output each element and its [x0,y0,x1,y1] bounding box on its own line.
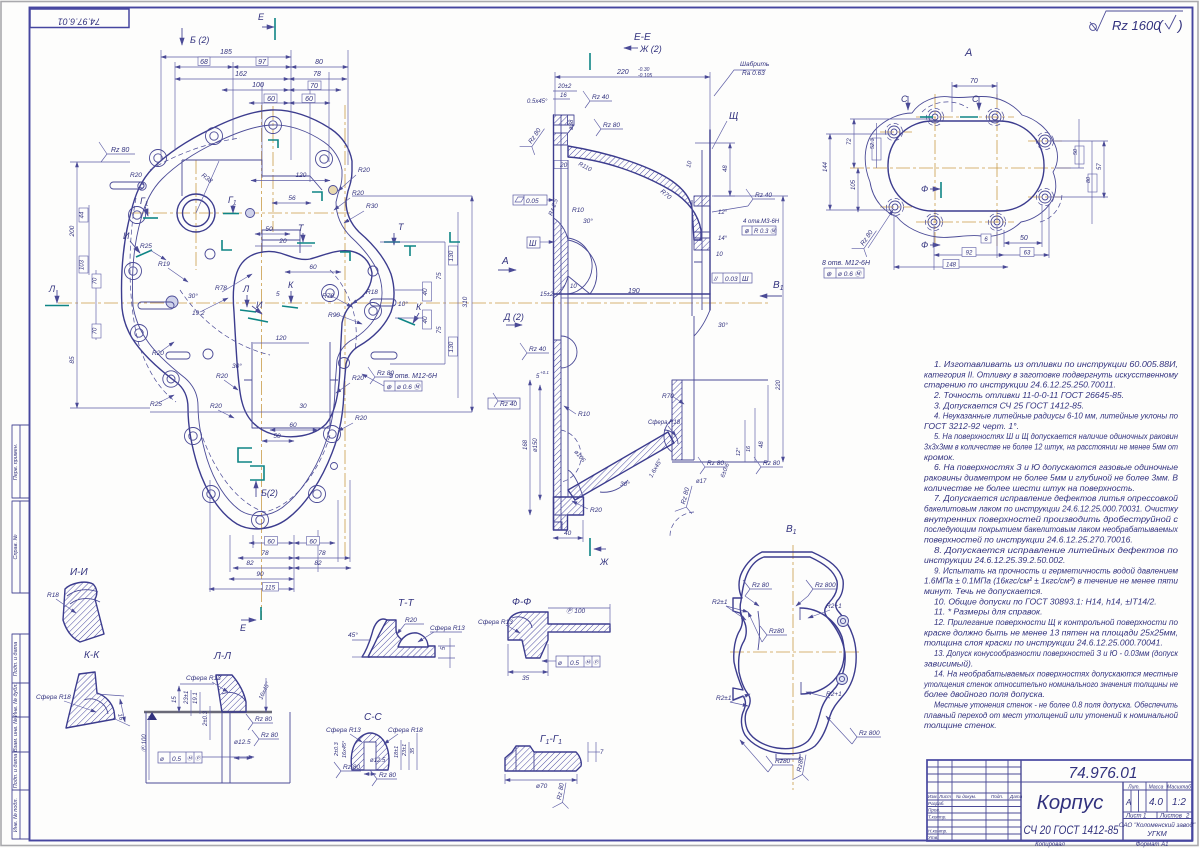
svg-text:Rz 80: Rz 80 [255,716,272,723]
svg-text:10. Общие допуски по ГОСТ 3089: 10. Общие допуски по ГОСТ 30893.1: Н14, … [934,596,1157,606]
svg-text:Дата: Дата [1009,794,1023,799]
svg-text:R20: R20 [352,375,364,382]
svg-text:190: 190 [628,288,640,295]
svg-text:Сфера R13: Сфера R13 [186,675,221,682]
svg-text:Шабрить: Шабрить [740,60,770,68]
svg-text:85: 85 [69,356,76,364]
svg-text:Ш: Ш [529,239,537,248]
svg-text:R19: R19 [158,261,170,268]
svg-text:2±0.3: 2±0.3 [203,710,209,727]
svg-text:Формат А1: Формат А1 [1136,842,1169,848]
svg-text:97: 97 [258,59,267,66]
svg-text:23±1: 23±1 [184,691,190,705]
svg-text:Ж: Ж [599,557,609,567]
svg-text:+0.1: +0.1 [540,370,549,375]
svg-text:103: 103 [80,259,86,270]
svg-text:30°: 30° [718,321,728,329]
svg-text:15±2: 15±2 [540,292,554,298]
svg-text:R18: R18 [47,592,59,599]
svg-text:45°: 45° [348,631,358,639]
svg-text:А: А [1125,798,1131,807]
svg-text:плавный переход от мест утолще: плавный переход от мест утолщений или ут… [924,710,1178,720]
svg-text:Ra 0.63: Ra 0.63 [742,70,765,77]
svg-text:60: 60 [309,539,317,546]
svg-text:100: 100 [252,82,264,89]
svg-text:ø 0.6 Ⓜ: ø 0.6 Ⓜ [838,270,863,278]
svg-text:Rz 80: Rz 80 [707,460,724,467]
svg-text:ГОСТ 3212-92 черт. 1°.: ГОСТ 3212-92 черт. 1°. [924,421,1019,431]
svg-text:63: 63 [1024,251,1031,257]
svg-text:8. Допускается исправление: 8. Допускается исправление литейных дефе… [934,545,1178,555]
svg-text:40: 40 [564,530,572,537]
svg-text:78: 78 [313,71,321,78]
svg-text:Сфера R13: Сфера R13 [430,625,465,632]
svg-text:130: 130 [448,341,455,352]
svg-text:120: 120 [296,172,307,179]
svg-text:20±2: 20±2 [557,84,572,90]
svg-text:16: 16 [560,93,567,99]
svg-text:60: 60 [267,96,275,103]
svg-text:185: 185 [220,49,232,56]
svg-text:И: И [256,300,263,310]
svg-text:Л: Л [48,284,56,294]
svg-text:Е-Е: Е-Е [634,32,651,43]
svg-text:16х45°: 16х45° [342,740,348,758]
svg-text:12°: 12° [736,447,742,456]
svg-text:минут. Течь не допускается.: минут. Течь не допускается. [924,586,1043,596]
svg-text:220: 220 [776,379,782,391]
svg-text:5: 5 [276,291,280,298]
svg-text:К-К: К-К [84,650,100,661]
svg-text:Б (2): Б (2) [190,35,209,45]
svg-text:утолщения стенок относительно: утолщения стенок относительно номинально… [923,679,1178,689]
svg-text:И: И [123,231,130,241]
svg-text:⊕: ⊕ [386,384,392,391]
svg-text:R 0.3 Ⓜ: R 0.3 Ⓜ [754,227,777,235]
svg-text:115: 115 [265,585,276,592]
svg-text:Масса: Масса [1149,785,1164,791]
svg-text:30: 30 [299,403,307,410]
svg-text:R20: R20 [355,415,367,422]
svg-text:Сфера R13: Сфера R13 [478,619,513,626]
svg-text:2. Точность отливки 11-0-0-11: 2. Точность отливки 11-0-0-11 ГОСТ 26645… [933,390,1124,400]
svg-text:Rz 40: Rz 40 [755,192,772,199]
svg-text:16: 16 [746,445,752,452]
svg-text:30°: 30° [583,217,593,225]
svg-text:0.05: 0.05 [526,198,539,205]
svg-text:0.03: 0.03 [725,276,738,283]
svg-text:57: 57 [1097,163,1103,170]
svg-text:2: 2 [1185,814,1190,820]
svg-text:80: 80 [315,59,323,66]
svg-text:Rz 40: Rz 40 [500,401,517,408]
svg-text:более двойного поля допуска.: более двойного поля допуска. [924,689,1045,699]
svg-text:10: 10 [716,252,723,258]
svg-text:Подп. и дата: Подп. и дата [13,754,19,788]
svg-text:72: 72 [847,138,853,145]
svg-text:Rz 800: Rz 800 [815,582,836,589]
svg-text:78: 78 [318,550,326,557]
svg-text:Л-Л: Л-Л [213,651,231,662]
svg-text:120: 120 [276,335,287,342]
svg-text:ОАО "Коломенский завод": ОАО "Коломенский завод" [1119,821,1196,829]
svg-text:Т.контр.: Т.контр. [928,815,947,820]
svg-text:Ⓟ 100: Ⓟ 100 [566,607,586,615]
svg-text:Сфера R18: Сфера R18 [36,694,71,701]
svg-text:R20: R20 [210,403,222,410]
svg-text:ø12.5: ø12.5 [234,739,251,746]
svg-text:Утв.: Утв. [928,835,938,840]
svg-text:162: 162 [235,71,247,78]
svg-text:40: 40 [422,288,429,296]
svg-text:ø17: ø17 [696,479,707,485]
svg-text:19.1: 19.1 [193,692,199,704]
svg-text:Rz 80: Rz 80 [111,147,129,154]
svg-text:30°: 30° [232,362,242,370]
svg-text:9. Испытать на прочность и гер: 9. Испытать на прочность и герметичность… [934,565,1178,575]
svg-text:⊕: ⊕ [826,271,832,278]
svg-text:68: 68 [200,59,208,66]
svg-text:Rz 1600: Rz 1600 [1112,18,1161,33]
svg-text:толщине стенок.: толщине стенок. [924,720,997,730]
svg-text:Ф-Ф: Ф-Ф [512,597,531,608]
svg-text:Масштаб: Масштаб [1167,785,1191,791]
svg-text:Rz 80: Rz 80 [261,732,278,739]
svg-text:внутренних поверхностей пр: внутренних поверхностей производить дроб… [924,514,1179,524]
svg-text:R25: R25 [140,243,152,250]
svg-text:Rz 80: Rz 80 [603,122,620,129]
svg-text:0.5: 0.5 [570,660,579,667]
svg-text:1: 1 [1143,814,1146,820]
svg-text:R2+1: R2+1 [826,603,842,610]
svg-text:Д (2): Д (2) [503,312,524,322]
svg-text:R20: R20 [216,373,228,380]
svg-text:Rz 40: Rz 40 [592,94,609,101]
svg-text:R10: R10 [578,411,590,418]
svg-text:C: C [901,94,908,104]
svg-text:11. * Размеры для справок.: 11. * Размеры для справок. [934,607,1043,617]
svg-text:48: 48 [759,441,765,448]
svg-text:Подп.: Подп. [991,794,1003,799]
svg-text:Щ: Щ [729,111,738,122]
svg-text:Подп. и дата: Подп. и дата [13,642,19,676]
svg-text:35: 35 [410,747,416,754]
svg-text:R2±1: R2±1 [716,695,732,702]
svg-text:14°: 14° [718,236,728,242]
svg-text:бакелитовым лаком по инстру: бакелитовым лаком по инструкции 24.6.12.… [924,504,1179,514]
svg-text:R20: R20 [358,167,370,174]
svg-text:Rz 80: Rz 80 [752,582,769,589]
svg-text:Пров.: Пров. [928,808,940,813]
svg-text:0.5х45°: 0.5х45° [527,99,548,105]
svg-text:9 отв. М12-6Н: 9 отв. М12-6Н [389,373,438,380]
svg-text:12. Прилегание поверхности Щ: 12. Прилегание поверхности Щ к контрольн… [934,617,1178,627]
svg-text:3. Допускается СЧ 25 ГОСТ 1412: 3. Допускается СЧ 25 ГОСТ 1412-85. [934,400,1084,410]
svg-text:70: 70 [970,78,978,85]
svg-text:10°: 10° [398,300,408,308]
svg-text:4. Неуказанные литейные радиус: 4. Неуказанные литейные радиусы 6-10 мм,… [934,411,1178,421]
svg-text:Е: Е [240,623,247,633]
svg-text:Ⓟ 100: Ⓟ 100 [140,734,148,752]
svg-text:К: К [288,280,294,290]
svg-text:кромок.: кромок. [924,452,955,462]
svg-text:48: 48 [723,165,729,172]
svg-text:60: 60 [289,422,297,429]
svg-text:75: 75 [436,272,443,280]
svg-text:А: А [964,47,972,59]
svg-text:Лист: Лист [1125,814,1141,820]
svg-text:ø150: ø150 [533,438,539,452]
svg-text:5. На поверхностях Ш и Щ допус: 5. На поверхностях Ш и Щ допускается нал… [934,431,1178,441]
svg-text:R20: R20 [152,350,164,357]
svg-text:50: 50 [273,433,281,440]
svg-text:Корпус: Корпус [1037,791,1104,814]
svg-text:Rz 80: Rz 80 [377,370,394,377]
svg-text:6. На поверхностях З и Ю: 6. На поверхностях З и Ю допускаются газ… [934,462,1178,472]
svg-text:4.0: 4.0 [1149,797,1163,808]
svg-text:ø: ø [160,756,164,763]
svg-text:50: 50 [265,226,273,233]
svg-text:СЧ 20 ГОСТ 1412-85: СЧ 20 ГОСТ 1412-85 [1024,825,1120,837]
svg-text:10: 10 [570,284,577,290]
svg-text:Сфера R13: Сфера R13 [326,727,361,734]
svg-text:зависимый).: зависимый). [923,658,973,668]
svg-text:К: К [416,302,422,312]
svg-text:раковины диаметром не более: раковины диаметром не более 5мм и глубин… [923,473,1178,483]
svg-text:20: 20 [559,162,568,169]
svg-text:А: А [501,256,509,267]
svg-text:Перв. примен.: Перв. примен. [13,444,19,481]
svg-text:Справ. №: Справ. № [13,534,19,559]
svg-text:15: 15 [172,696,178,703]
svg-text:3х3х3мм в количестве не более: 3х3х3мм в количестве не более 12 штук, н… [924,442,1178,452]
svg-text:Местные утонения стенок - не б: Местные утонения стенок - не более 0.8 п… [934,700,1178,710]
svg-text:Б(2): Б(2) [261,488,278,498]
svg-text:78: 78 [261,550,269,557]
svg-text:90: 90 [256,571,264,578]
svg-text:168: 168 [523,439,529,450]
svg-text:Копировал: Копировал [1035,842,1065,848]
svg-text:R10: R10 [572,207,584,214]
svg-text:130: 130 [448,250,455,261]
svg-text:0.5: 0.5 [172,756,181,763]
svg-text:количестве не более шести штук: количестве не более шести штук на поверх… [924,483,1135,493]
svg-text:инструкции 24.6.12.25.39.2.50.: инструкции 24.6.12.25.39.2.50.002. [924,555,1065,565]
svg-text:1. Изготавливать из отливк: 1. Изготавливать из отливки по инструкци… [934,359,1178,369]
svg-text:50: 50 [1020,235,1028,242]
svg-text:Разраб.: Разраб. [928,801,945,806]
svg-text:УГКМ: УГКМ [1146,829,1167,838]
svg-text:R20: R20 [130,172,142,179]
svg-text:старению по инструкции 24.6.12: старению по инструкции 24.6.12.25.250.70… [924,380,1116,390]
svg-text:последующим покрытием бакели: последующим покрытием бакелитовым лаком … [924,524,1179,534]
svg-text:Сфера R18: Сфера R18 [388,727,423,734]
svg-text:Е: Е [258,12,265,22]
svg-text:19.2: 19.2 [192,310,205,317]
svg-text:R20: R20 [405,617,417,624]
svg-text:поверхностей по инструкции 24.: поверхностей по инструкции 24.6.12.25.27… [924,534,1133,544]
svg-text:краске должно быть не мене: краске должно быть не менее 13 пятен на … [924,627,1178,637]
svg-text:Инв. № дубл.: Инв. № дубл. [13,683,19,717]
svg-text:Ш: Ш [742,276,749,283]
svg-text:Rz 800: Rz 800 [859,730,880,737]
svg-text:категория II. Отливку в за: категория II. Отливку в заготовке подвер… [924,369,1179,379]
svg-text:52.3: 52.3 [870,137,876,149]
svg-text:56: 56 [288,195,296,202]
svg-text:Инв. № подл.: Инв. № подл. [13,798,19,832]
svg-text:4 отв.М3-6Н: 4 отв.М3-6Н [743,219,780,225]
svg-text:Т-Т: Т-Т [398,598,414,609]
svg-text:18±1: 18±1 [394,746,400,758]
svg-text:Rz80: Rz80 [775,758,791,765]
svg-text:60: 60 [267,539,275,546]
svg-text:80: 80 [1086,176,1092,183]
svg-text:С-С: С-С [364,712,383,723]
svg-text:Листов: Листов [1159,814,1182,820]
svg-text:82: 82 [246,560,254,567]
svg-text:30°: 30° [188,292,198,300]
svg-text:C: C [972,94,979,104]
svg-text:14. На необрабатываемых пове: 14. На необрабатываемых поверхностях доп… [934,669,1178,679]
svg-text:44: 44 [80,211,86,218]
svg-text:ø: ø [558,660,562,667]
svg-text:310: 310 [462,296,469,307]
svg-text:Взам. инв. №: Взам. инв. № [13,718,19,752]
svg-text:23±1: 23±1 [402,744,408,757]
svg-text:Rz80: Rz80 [769,628,785,635]
svg-text:2±0.3: 2±0.3 [334,741,340,757]
svg-text:Ж (2): Ж (2) [639,44,662,54]
svg-text:13. Допуск конусообразности по: 13. Допуск конусообразности поверхностей… [934,648,1179,658]
svg-text:R90: R90 [328,312,340,319]
svg-text:R2±1: R2±1 [712,599,728,606]
svg-text:ø70: ø70 [536,783,548,790]
svg-text:R2+1: R2+1 [826,691,842,698]
svg-text:Rz 80: Rz 80 [379,772,396,779]
svg-text:20: 20 [278,238,287,245]
svg-text:Ф: Ф [921,240,928,250]
svg-text:75: 75 [436,326,443,334]
svg-text:8 отв. М12-6Н: 8 отв. М12-6Н [822,260,871,267]
svg-text:Rz 80: Rz 80 [343,764,360,771]
svg-text:-0.105: -0.105 [638,73,652,79]
svg-text:220: 220 [616,69,629,76]
svg-text:74.976.01: 74.976.01 [1069,765,1138,782]
svg-text:№ докум.: № докум. [956,794,976,799]
svg-text:R30: R30 [366,203,378,210]
svg-text:7. Допускается исправление: 7. Допускается исправление дефектов лить… [934,493,1178,503]
svg-text:Изм. Лист: Изм. Лист [928,794,951,799]
svg-text:144: 144 [823,161,829,172]
svg-text:Л: Л [242,284,250,294]
svg-text:1.6МПа ± 0.1МПа (16кгс/см² ± 1: 1.6МПа ± 0.1МПа (16кгс/см² ± 1кгс/см²) в… [924,576,1178,586]
svg-text:70: 70 [93,327,99,334]
svg-text:35: 35 [522,675,530,682]
svg-text:Лит.: Лит. [1127,785,1140,791]
svg-text:105: 105 [851,179,857,190]
svg-text:70: 70 [310,83,318,90]
svg-text:ø 0.6 Ⓜ: ø 0.6 Ⓜ [397,383,422,391]
svg-text:60: 60 [305,96,313,103]
svg-text:82: 82 [314,560,322,567]
svg-text:200: 200 [69,225,76,237]
svg-text:толщина слоя краски по инструк: толщина слоя краски по инструкции 24.6.1… [924,638,1163,648]
svg-text:74.97.6.01: 74.97.6.01 [58,17,101,27]
svg-text:R20: R20 [590,507,602,514]
svg-text:Ф: Ф [921,184,928,194]
svg-text:Н.контр.: Н.контр. [928,829,947,834]
svg-text:1:2: 1:2 [1172,797,1186,808]
svg-text:Rz 40: Rz 40 [529,346,546,353]
svg-text:ø12.5: ø12.5 [370,758,386,764]
svg-text:60: 60 [309,264,317,271]
svg-text:92: 92 [966,251,973,257]
svg-text:Rz 80: Rz 80 [763,460,780,467]
svg-text:R18: R18 [366,289,378,296]
svg-text:50: 50 [1073,148,1079,155]
svg-text:12°: 12° [718,210,728,216]
svg-text:40: 40 [422,316,429,324]
svg-text:И-И: И-И [70,567,88,578]
svg-text:R78: R78 [215,285,227,292]
svg-text:70: 70 [93,277,99,284]
svg-text:148: 148 [946,263,957,269]
